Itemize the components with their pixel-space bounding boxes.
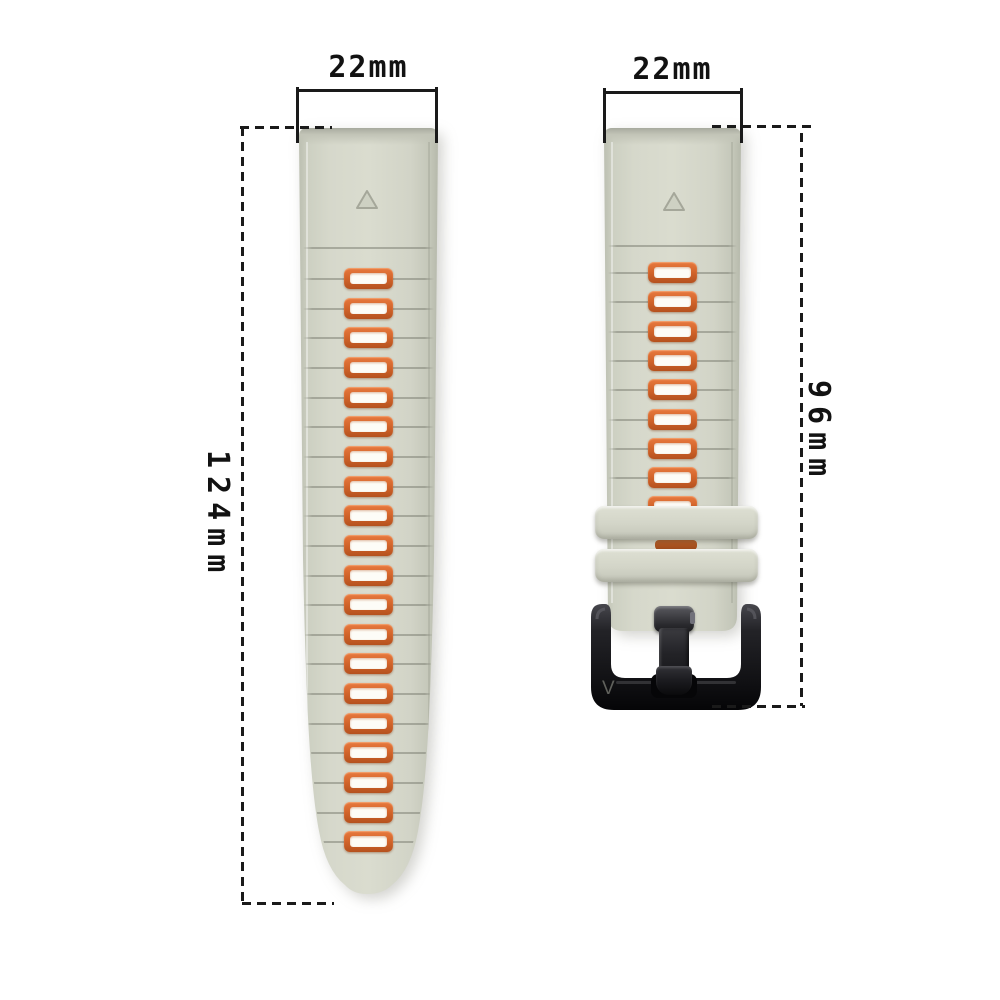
- band-slot: [344, 357, 393, 378]
- band-slot: [648, 379, 697, 400]
- band-slot-hole: [350, 658, 387, 669]
- band-slot-hole: [654, 414, 691, 425]
- band-slot: [344, 683, 393, 704]
- band-slot: [648, 438, 697, 459]
- buckle: V: [591, 604, 761, 710]
- band-slot-hole: [350, 747, 387, 758]
- alignment-triangle-icon: [662, 191, 686, 213]
- band-slot-hole: [350, 836, 387, 847]
- band-slot-hole: [350, 688, 387, 699]
- band-slot-hole: [350, 332, 387, 343]
- band-slot-hole: [654, 472, 691, 483]
- band-slot: [344, 387, 393, 408]
- band-slot: [344, 476, 393, 497]
- dim-tick: [603, 88, 606, 143]
- band-slot: [344, 594, 393, 615]
- alignment-triangle-icon: [355, 189, 379, 211]
- band-slot-hole: [654, 443, 691, 454]
- band-slot: [344, 416, 393, 437]
- band-slot-hole: [350, 540, 387, 551]
- band-slot: [344, 653, 393, 674]
- band-slot-hole: [654, 267, 691, 278]
- band-slot-hole: [350, 481, 387, 492]
- long-band-face: [299, 128, 438, 898]
- long-band: [299, 128, 438, 898]
- band-slot-hole: [350, 510, 387, 521]
- strap-groove: [303, 247, 434, 249]
- band-slot-hole: [350, 273, 387, 284]
- band-slot: [344, 535, 393, 556]
- band-slot-hole: [350, 599, 387, 610]
- band-slot: [344, 505, 393, 526]
- long-band-length-label: 124mm: [200, 450, 235, 580]
- buckle-tongue-pin: [690, 612, 695, 624]
- long-band-length-ext-bottom: [242, 902, 334, 905]
- band-slot: [344, 446, 393, 467]
- keeper-loop-1: [595, 506, 758, 539]
- short-band-length-ext-top: [712, 125, 815, 128]
- band-slot: [344, 327, 393, 348]
- buckle-tongue-tip: [656, 666, 692, 695]
- short-band-length-ext-bottom: [712, 705, 805, 708]
- band-slot-hole: [654, 296, 691, 307]
- band-slot-hole: [350, 451, 387, 462]
- band-slot-hole: [350, 362, 387, 373]
- strap-groove: [608, 245, 737, 247]
- long-band-width-dim-line: [299, 89, 438, 92]
- band-slot: [344, 268, 393, 289]
- band-slot-hole: [350, 421, 387, 432]
- keeper-loop-2: [595, 549, 758, 582]
- long-band-width-label: 22mm: [299, 50, 438, 85]
- band-slot-hole: [654, 355, 691, 366]
- band-slot-hole: [350, 718, 387, 729]
- short-band-length-label: 96mm: [801, 380, 836, 484]
- band-slot-hole: [350, 392, 387, 403]
- buckle-logo: V: [602, 678, 628, 702]
- band-slot: [344, 742, 393, 763]
- band-top-edge: [300, 128, 437, 145]
- dim-tick: [435, 87, 438, 143]
- band-slot-hole: [350, 303, 387, 314]
- band-slot-hole: [350, 629, 387, 640]
- band-slot: [344, 565, 393, 586]
- short-band-width-dim-line: [605, 91, 742, 94]
- dim-tick: [740, 88, 743, 143]
- band-slot-hole: [350, 777, 387, 788]
- band-slot-hole: [654, 326, 691, 337]
- band-slot: [344, 298, 393, 319]
- band-slot: [344, 624, 393, 645]
- band-slot: [648, 291, 697, 312]
- band-slot: [344, 713, 393, 734]
- band-slot-hole: [654, 384, 691, 395]
- band-slot: [344, 802, 393, 823]
- band-slot: [648, 321, 697, 342]
- band-slot: [344, 831, 393, 852]
- band-slot: [648, 262, 697, 283]
- long-band-length-ext-top: [240, 126, 332, 129]
- band-slot-hole: [350, 807, 387, 818]
- dim-tick: [296, 87, 299, 143]
- band-slot: [648, 409, 697, 430]
- band-slot: [344, 772, 393, 793]
- short-band-width-label: 22mm: [604, 52, 741, 87]
- band-slot: [648, 350, 697, 371]
- product-dimension-diagram: V 22mm 22mm 124mm 96mm: [0, 0, 1000, 1000]
- long-band-length-dim-line: [241, 127, 244, 906]
- band-slot-hole: [350, 570, 387, 581]
- band-top-edge: [605, 128, 740, 145]
- band-slot: [648, 467, 697, 488]
